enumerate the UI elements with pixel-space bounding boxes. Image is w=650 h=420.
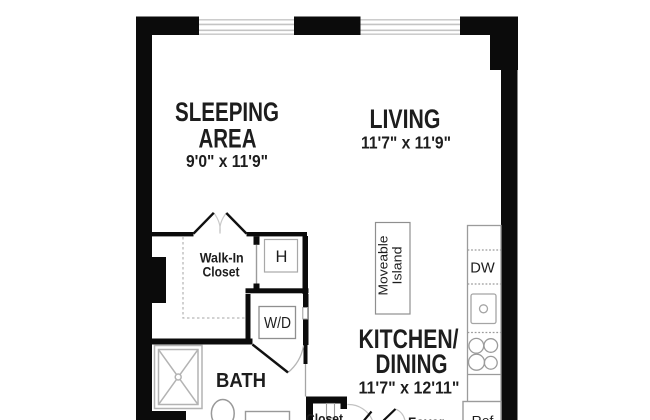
svg-text:DINING: DINING: [376, 349, 448, 379]
svg-text:Moveable: Moveable: [376, 236, 391, 296]
svg-text:BATH: BATH: [216, 370, 266, 392]
svg-text:11'7" x 12'11": 11'7" x 12'11": [359, 377, 460, 397]
svg-text:Ref: Ref: [472, 413, 494, 420]
svg-text:Island: Island: [390, 247, 405, 285]
svg-text:LIVING: LIVING: [370, 104, 441, 134]
svg-text:Closet: Closet: [306, 411, 343, 420]
svg-text:DW: DW: [470, 260, 495, 277]
svg-text:AREA: AREA: [199, 123, 257, 153]
svg-text:W/D: W/D: [264, 315, 291, 332]
svg-text:H: H: [276, 248, 288, 266]
svg-text:Closet: Closet: [203, 263, 240, 279]
svg-text:11'7" x 11'9": 11'7" x 11'9": [361, 133, 451, 153]
svg-text:Foyer: Foyer: [408, 414, 445, 420]
svg-text:9'0" x 11'9": 9'0" x 11'9": [186, 151, 268, 171]
